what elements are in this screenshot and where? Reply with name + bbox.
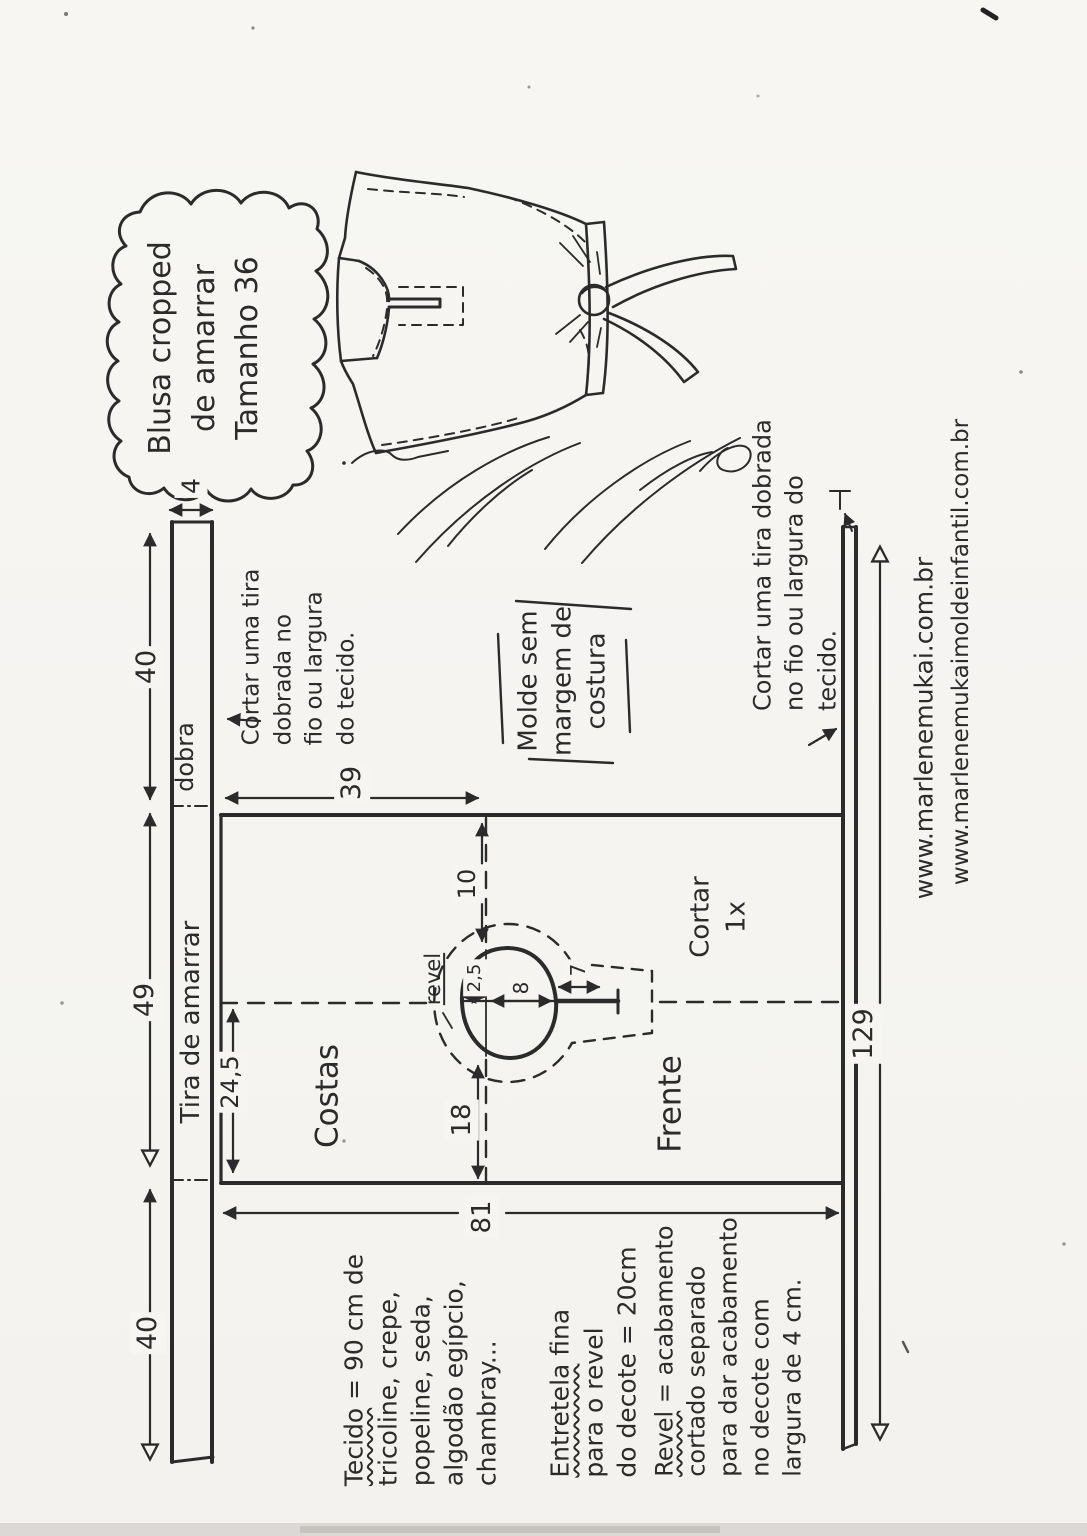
dim-strip-width: 4	[175, 474, 208, 498]
website-url-1: www.marlenemukai.com.br	[908, 557, 941, 899]
title-bubble-text: Blusa cropped de amarrar Tamanho 36	[139, 241, 270, 455]
dim-neck-left-offset: 2,5	[463, 960, 487, 997]
dim-side-length: 129	[846, 1004, 882, 1064]
facing-definition-note: Revel = acabamento cortado separado para…	[617, 1217, 808, 1477]
dim-back-fold-depth: 24,5	[215, 1051, 247, 1112]
neckline-detail	[434, 924, 652, 1082]
fabric-note-head: Tecido	[340, 1408, 369, 1486]
dim-body-width: 81	[465, 1196, 499, 1237]
front-piece-label: Frente	[651, 1055, 692, 1153]
facing-label: revel	[420, 953, 448, 1005]
fabric-note: Tecido = 90 cm de tricoline, crepe, pope…	[304, 1254, 504, 1486]
dim-strip-bottom: 40	[130, 1312, 166, 1354]
dim-strip-top: 40	[129, 646, 165, 688]
cut-count-label: Cortar 1x	[683, 876, 756, 958]
right-strip-outline	[843, 527, 856, 1449]
dim-neck-drop: 10	[452, 865, 484, 904]
back-piece-label: Costas	[308, 1044, 349, 1148]
dim-front-neck-depth: 18	[445, 1099, 479, 1140]
facing-definition-head: Revel	[650, 1411, 678, 1477]
interfacing-note-head: Entretela	[546, 1364, 575, 1478]
scanned-sewing-pattern-page: Blusa cropped de amarrar Tamanho 36 4 40…	[0, 0, 1087, 1536]
cut-strip-note-right: Cortar uma tira dobrada no fio ou largur…	[746, 419, 843, 711]
dim-neck-opening: 8	[508, 978, 534, 999]
fold-label: dobra	[170, 722, 202, 792]
dim-back-top-width: 39	[334, 762, 370, 804]
dim-slit-length: 7	[565, 960, 591, 981]
no-seam-note: Molde sem margem de costura	[512, 606, 613, 756]
website-url-2: www.marlenemukaimoldeinfantil.com.br	[946, 419, 976, 885]
tie-strip-label: Tira de amarrar	[174, 921, 208, 1124]
signature-scribble	[342, 437, 750, 563]
dim-strip-mid: 49	[127, 979, 163, 1021]
cut-strip-note-left: Cortar uma tira dobrada no fio ou largur…	[237, 569, 364, 746]
blouse-illustration	[337, 172, 736, 453]
